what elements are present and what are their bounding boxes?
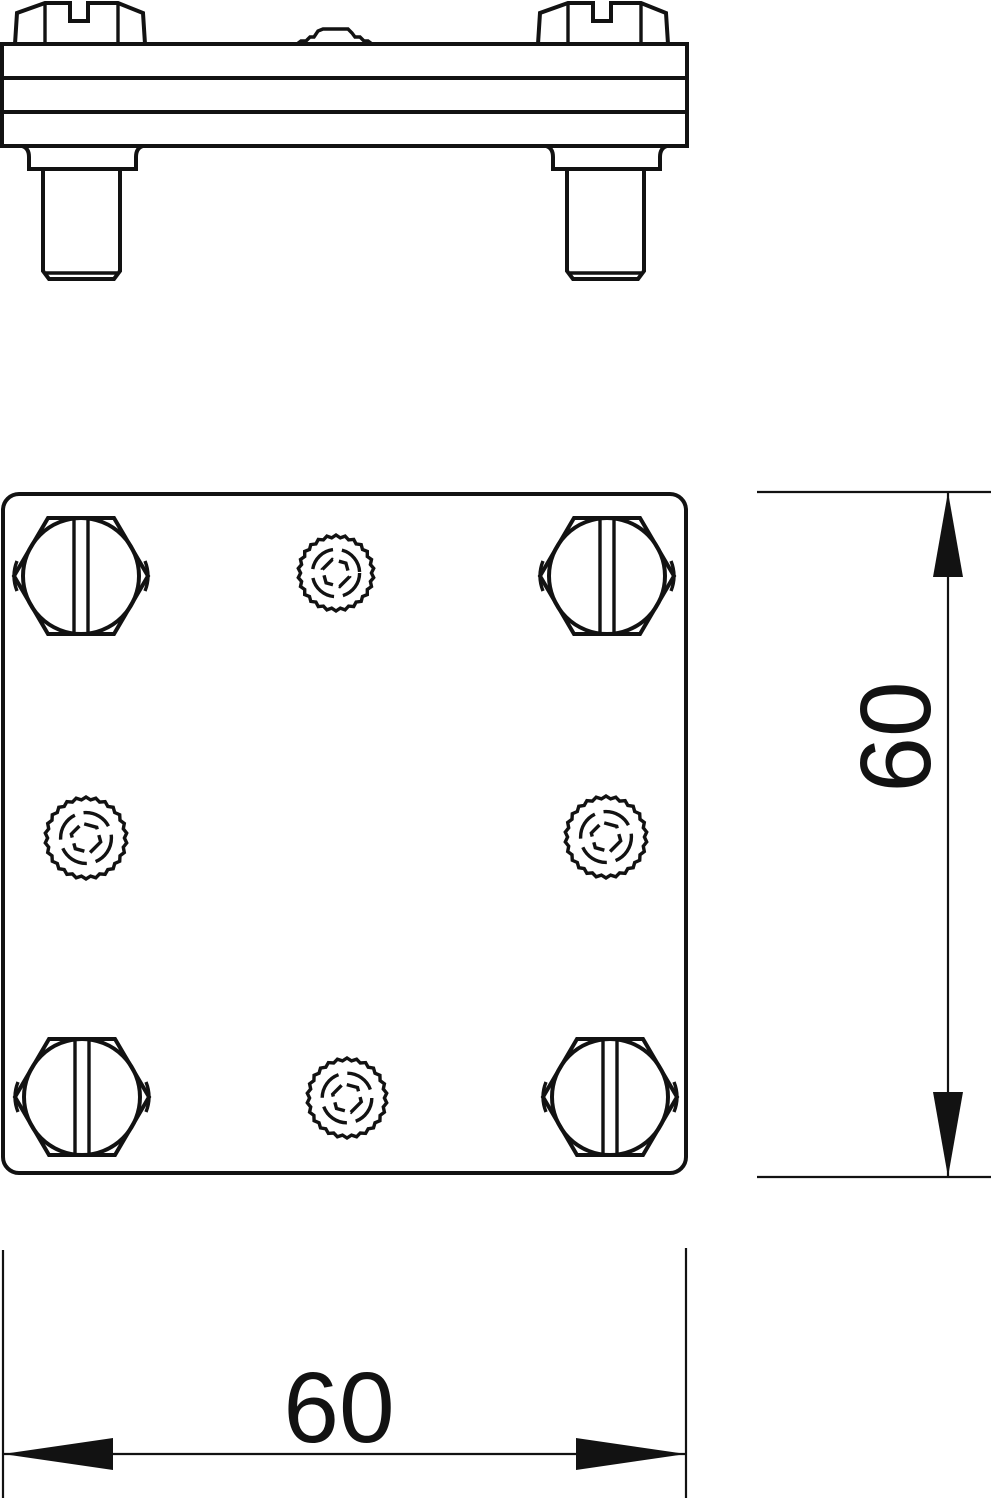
center-stud-bump	[297, 29, 372, 44]
dimension-label-height: 60	[840, 681, 952, 792]
head-circle	[24, 1039, 140, 1155]
head-circle	[552, 1039, 668, 1155]
clamp-body-outline	[2, 44, 687, 146]
vertex-arc	[671, 561, 674, 591]
hex-bolt	[543, 1039, 677, 1155]
vertex-arc	[145, 561, 148, 591]
vertex-arc	[674, 1082, 677, 1112]
head-circle	[23, 518, 139, 634]
hex-outline	[543, 1039, 677, 1155]
hex-bolt	[540, 518, 674, 634]
inner-circle	[312, 549, 359, 596]
screw-head-left	[15, 3, 145, 44]
knurl-layer	[45, 535, 646, 1138]
vertex-arc	[540, 561, 543, 591]
inner-circle	[322, 1073, 372, 1123]
vertex-arc	[14, 561, 17, 591]
hex-bolt	[14, 518, 148, 634]
hex-bolt	[15, 1039, 149, 1155]
side-view	[2, 3, 687, 279]
arrow-left-icon	[3, 1438, 113, 1470]
arrow-up-icon	[933, 492, 963, 577]
vertex-arc	[15, 1082, 18, 1112]
knurled-stud	[565, 796, 646, 878]
knurled-stud	[307, 1058, 386, 1138]
center-hexagon	[322, 559, 349, 586]
knurl-ring	[298, 535, 373, 611]
knurled-stud	[298, 535, 373, 611]
dimension-width: 60	[3, 1248, 686, 1498]
hex-outline	[14, 518, 148, 634]
bolt-right	[546, 146, 667, 279]
screw-head-right	[538, 3, 668, 44]
plan-view	[3, 494, 686, 1173]
drawing-svg: 60 60	[0, 0, 993, 1500]
head-circle	[549, 518, 665, 634]
arrow-down-icon	[933, 1092, 963, 1177]
vertex-arc	[543, 1082, 546, 1112]
knurl-ring	[307, 1058, 386, 1138]
center-hexagon	[333, 1084, 362, 1113]
vertex-arc	[146, 1082, 149, 1112]
inner-circle	[61, 813, 112, 864]
dimension-label-width: 60	[283, 1352, 394, 1464]
center-hexagon	[591, 822, 620, 851]
knurled-stud	[45, 797, 126, 879]
knurl-ring	[45, 797, 126, 879]
center-hexagon	[71, 823, 100, 852]
hex-outline	[540, 518, 674, 634]
knurl-ring	[565, 796, 646, 878]
technical-drawing-page: 60 60	[0, 0, 993, 1500]
dimension-height: 60	[757, 492, 991, 1177]
bolt-left	[22, 146, 143, 279]
hex-outline	[15, 1039, 149, 1155]
arrow-right-icon	[576, 1438, 686, 1470]
inner-circle	[581, 812, 632, 863]
